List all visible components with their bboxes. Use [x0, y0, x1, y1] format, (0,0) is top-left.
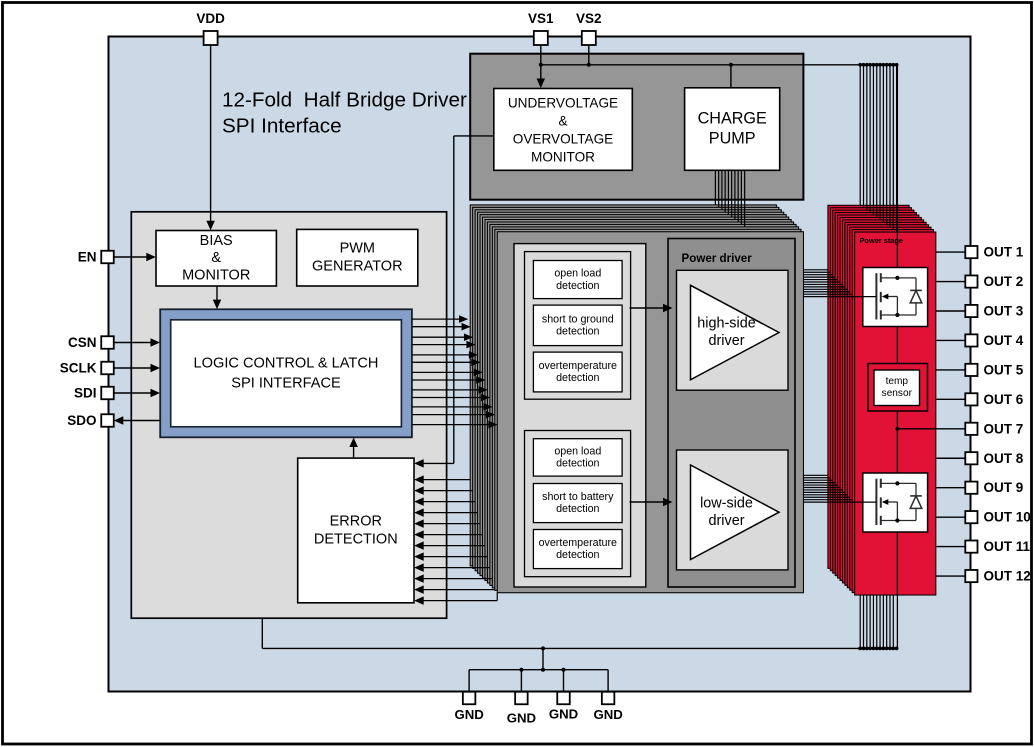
- svg-text:GND: GND: [454, 707, 483, 722]
- svg-text:SPI INTERFACE: SPI INTERFACE: [231, 376, 341, 392]
- svg-text:OUT 9: OUT 9: [984, 480, 1024, 495]
- svg-text:PWM: PWM: [340, 241, 375, 257]
- svg-text:short to ground: short to ground: [542, 313, 614, 325]
- svg-text:GENERATOR: GENERATOR: [312, 259, 403, 275]
- svg-text:VS2: VS2: [576, 11, 602, 26]
- svg-text:VDD: VDD: [196, 11, 225, 26]
- svg-text:sensor: sensor: [882, 388, 913, 399]
- svg-text:UNDERVOLTAGE: UNDERVOLTAGE: [508, 96, 618, 111]
- svg-text:Power driver: Power driver: [682, 252, 753, 265]
- svg-text:OUT 6: OUT 6: [984, 392, 1024, 407]
- svg-text:GND: GND: [593, 707, 622, 722]
- svg-text:overtemperature: overtemperature: [539, 360, 617, 372]
- svg-text:detection: detection: [556, 549, 599, 561]
- svg-text:GND: GND: [507, 711, 536, 726]
- svg-text:GND: GND: [549, 707, 578, 722]
- svg-text:temp: temp: [886, 376, 909, 387]
- svg-text:ERROR: ERROR: [330, 514, 382, 530]
- svg-text:OUT 4: OUT 4: [984, 333, 1024, 348]
- svg-text:OUT 1: OUT 1: [984, 245, 1024, 260]
- svg-text:SDO: SDO: [67, 413, 96, 428]
- svg-text:OUT 2: OUT 2: [984, 274, 1024, 289]
- svg-text:detection: detection: [556, 458, 599, 470]
- svg-text:OUT 12: OUT 12: [984, 569, 1031, 584]
- svg-text:CSN: CSN: [68, 335, 97, 350]
- svg-text:driver: driver: [709, 333, 745, 349]
- svg-text:detection: detection: [556, 503, 599, 515]
- svg-text:open load: open load: [554, 268, 601, 280]
- svg-text:VS1: VS1: [528, 11, 554, 26]
- svg-text:&: &: [558, 114, 567, 129]
- svg-text:SDI: SDI: [74, 386, 97, 401]
- svg-text:OUT 3: OUT 3: [984, 304, 1024, 319]
- svg-text:MONITOR: MONITOR: [531, 150, 595, 165]
- svg-text:detection: detection: [556, 372, 599, 384]
- svg-text:open load: open load: [554, 446, 601, 458]
- svg-text:Power stage: Power stage: [860, 236, 904, 245]
- svg-text:driver: driver: [709, 513, 745, 529]
- svg-text:OUT 10: OUT 10: [984, 510, 1031, 525]
- svg-text:CHARGE: CHARGE: [698, 110, 767, 128]
- svg-text:LOGIC CONTROL & LATCH: LOGIC CONTROL & LATCH: [194, 356, 379, 372]
- svg-text:low-side: low-side: [700, 495, 753, 511]
- svg-text:detection: detection: [556, 326, 599, 338]
- svg-text:OUT 5: OUT 5: [984, 362, 1024, 377]
- svg-text:DETECTION: DETECTION: [314, 532, 398, 548]
- svg-text:EN: EN: [78, 250, 97, 265]
- svg-text:PUMP: PUMP: [709, 130, 756, 148]
- svg-text:MONITOR: MONITOR: [182, 268, 250, 284]
- svg-text:SPI Interface: SPI Interface: [222, 115, 342, 138]
- svg-text:OUT 8: OUT 8: [984, 451, 1024, 466]
- svg-text:high-side: high-side: [697, 315, 755, 331]
- svg-text:OUT 11: OUT 11: [984, 539, 1031, 554]
- svg-text:SCLK: SCLK: [60, 361, 97, 376]
- svg-text:12-Fold Half Bridge Driver: 12-Fold Half Bridge Driver: [222, 89, 467, 112]
- svg-text:overtemperature: overtemperature: [539, 537, 617, 549]
- svg-text:short to battery: short to battery: [542, 491, 614, 503]
- svg-text:&: &: [211, 250, 221, 266]
- svg-text:detection: detection: [556, 280, 599, 292]
- svg-text:OUT 7: OUT 7: [984, 421, 1024, 436]
- svg-text:OVERVOLTAGE: OVERVOLTAGE: [513, 132, 613, 147]
- svg-text:BIAS: BIAS: [200, 233, 233, 249]
